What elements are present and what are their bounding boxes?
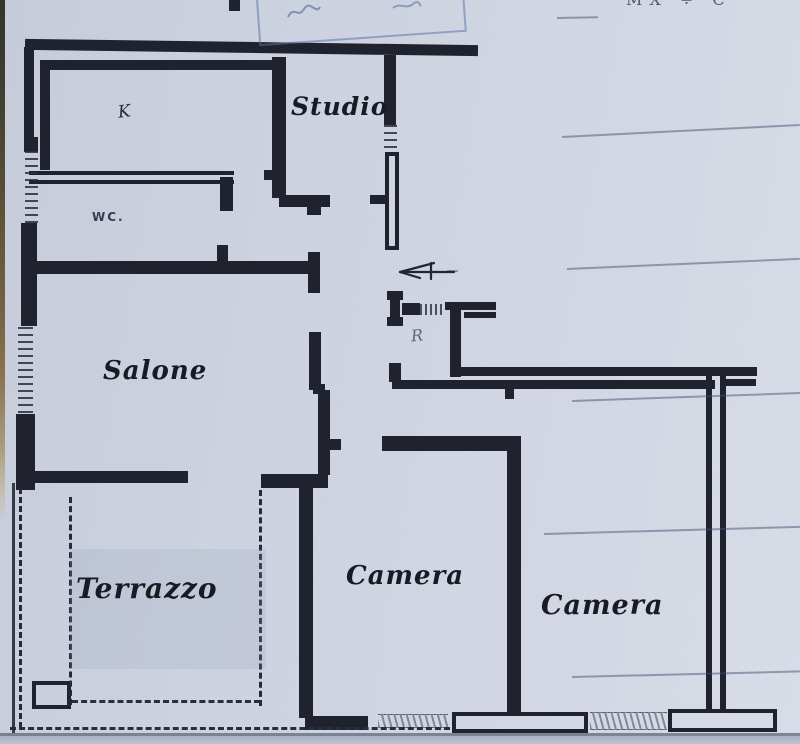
wall-segment xyxy=(455,367,757,376)
wall-segment xyxy=(464,312,496,318)
dashed-boundary xyxy=(72,700,260,703)
wall-segment xyxy=(721,379,756,386)
wall-segment xyxy=(264,170,274,180)
bleed-through-line xyxy=(544,526,800,535)
wall-segment xyxy=(330,439,341,450)
wall-segment xyxy=(20,471,188,483)
entrance-arrow-icon xyxy=(394,258,458,284)
photo-left-edge xyxy=(0,0,5,522)
wall-segment xyxy=(279,195,330,207)
bleed-through-line xyxy=(557,16,598,19)
wall-segment xyxy=(272,57,286,198)
wall-segment xyxy=(25,39,478,56)
room-label-kitchen: K xyxy=(117,103,133,122)
wall-segment xyxy=(382,436,515,451)
window-hatch xyxy=(18,327,33,415)
opening-hatch xyxy=(378,714,448,728)
wall-segment xyxy=(299,488,313,718)
floor-plan: MX ÷ C K Studio WC. Salone Terrazzo Came… xyxy=(0,0,800,744)
door-hatch xyxy=(420,304,445,315)
wall-segment xyxy=(392,380,715,389)
opening-hatch xyxy=(590,712,667,730)
scan-shading xyxy=(70,549,266,669)
wall-segment xyxy=(40,60,280,70)
wall-segment xyxy=(24,137,38,152)
dashed-boundary xyxy=(19,488,22,728)
room-label-camera-middle: Camera xyxy=(346,563,464,589)
wall-segment xyxy=(507,436,521,716)
wall-segment xyxy=(32,261,316,274)
wall-segment xyxy=(40,60,50,170)
window-hatch xyxy=(384,125,397,153)
wall-segment xyxy=(318,390,330,475)
window-hatch xyxy=(25,151,38,224)
room-label-salone: Salone xyxy=(103,358,207,384)
cutoff-header-text: MX ÷ C xyxy=(626,0,798,11)
room-label-storage: R xyxy=(410,327,424,344)
bleed-through-line xyxy=(562,124,800,138)
stamp-signature-scribble xyxy=(286,1,324,21)
photo-bottom-edge xyxy=(0,736,800,744)
bleed-through-line xyxy=(572,392,800,402)
hollow-wall xyxy=(452,712,588,733)
wall-segment xyxy=(402,303,420,315)
wall-segment xyxy=(307,205,321,215)
thin-wall-line xyxy=(12,483,15,733)
stamp-mark-scribble xyxy=(392,0,422,12)
wall-segment xyxy=(390,299,400,319)
room-label-terrazzo: Terrazzo xyxy=(76,575,218,603)
wall-segment xyxy=(387,317,403,326)
wall-segment xyxy=(261,474,328,488)
wall-segment xyxy=(308,252,320,293)
wall-segment xyxy=(309,332,321,390)
wall-segment xyxy=(21,223,37,326)
wall-segment xyxy=(229,0,240,11)
hollow-wall-vertical xyxy=(706,376,726,711)
bleed-through-line xyxy=(572,670,800,678)
dashed-boundary xyxy=(10,727,450,730)
wall-segment xyxy=(217,245,228,263)
double-line-wall xyxy=(29,171,234,184)
hollow-wall xyxy=(385,152,399,250)
room-label-camera-right: Camera xyxy=(541,592,663,619)
hollow-wall xyxy=(32,681,71,709)
wall-segment xyxy=(24,47,34,139)
wall-segment xyxy=(370,195,386,204)
wall-segment xyxy=(505,389,514,399)
bleed-through-line xyxy=(567,258,800,270)
room-label-wc: WC. xyxy=(92,211,125,223)
hollow-wall xyxy=(668,709,777,732)
room-label-studio: Studio xyxy=(291,94,388,119)
